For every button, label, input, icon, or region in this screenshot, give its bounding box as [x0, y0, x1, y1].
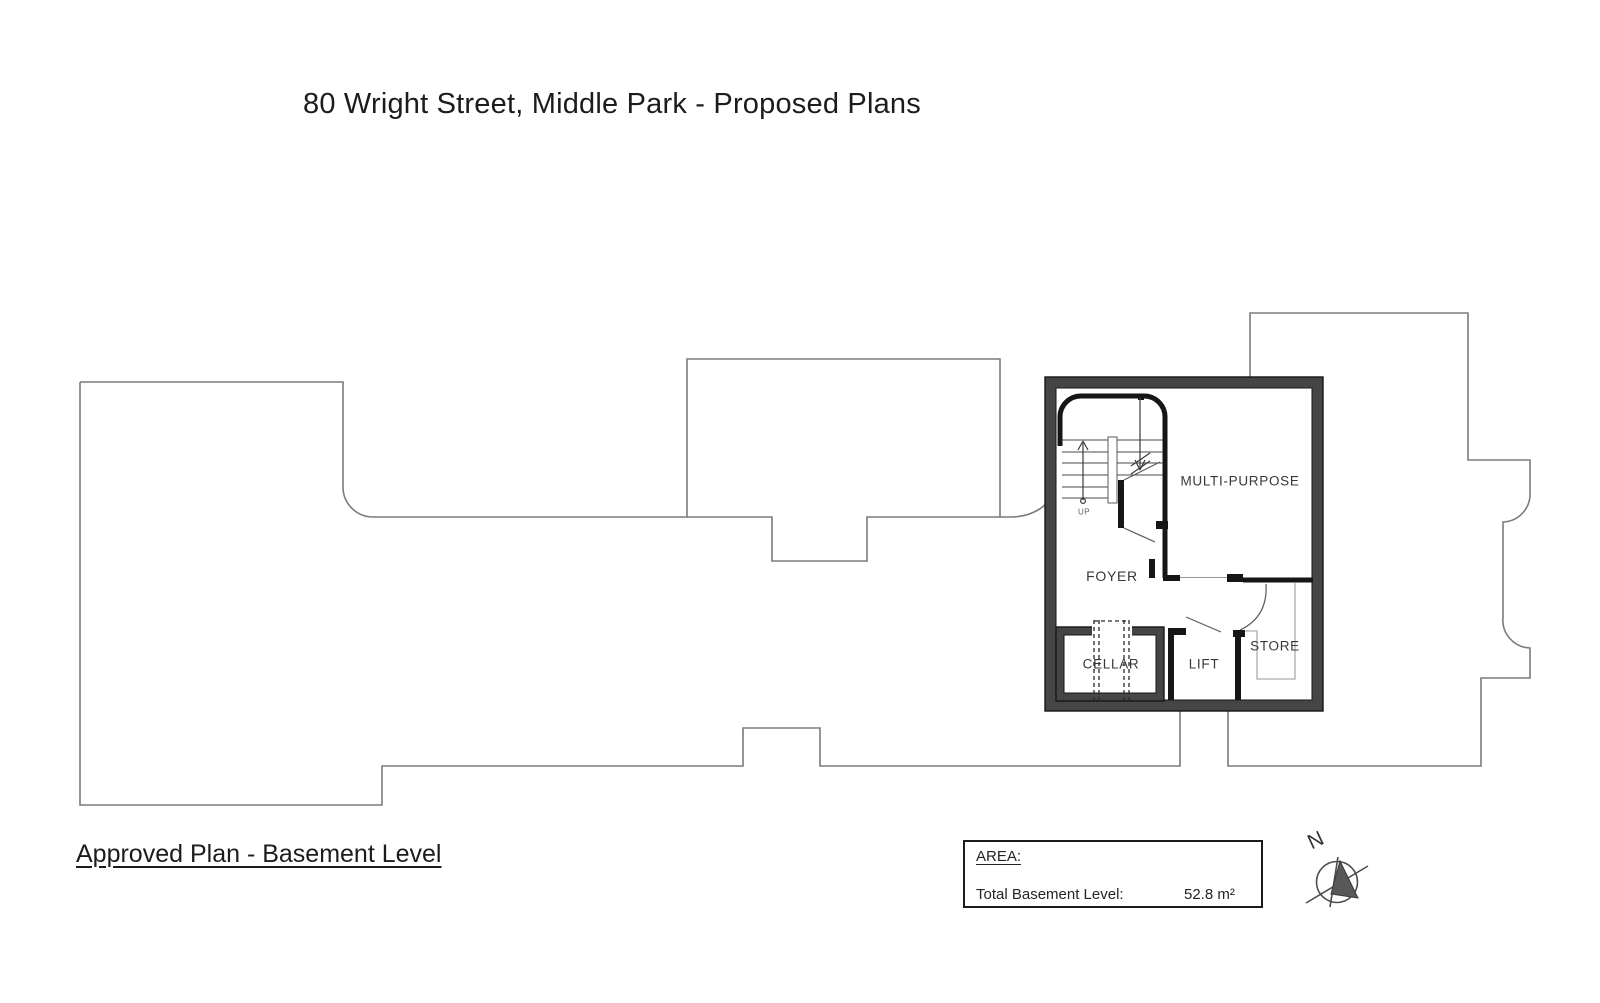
room-label-multi-purpose: MULTI-PURPOSE: [1180, 474, 1299, 489]
area-total-value: 52.8 m²: [1184, 886, 1235, 903]
foyer-column: [1149, 559, 1155, 578]
room-label-lift: LIFT: [1189, 657, 1220, 672]
area-summary-box: AREA: Total Basement Level: 52.8 m²: [963, 840, 1263, 908]
compass-needle: [1331, 861, 1358, 898]
stair-stringer: [1108, 437, 1117, 503]
floor-plan-page: 80 Wright Street, Middle Park - Proposed…: [0, 0, 1600, 1003]
cellar-hatch-gap: [1092, 626, 1132, 636]
outline-lower-left: [80, 382, 1180, 805]
area-total-label: Total Basement Level:: [976, 886, 1124, 903]
room-label-store: STORE: [1250, 639, 1300, 654]
door-jamb: [1156, 521, 1168, 529]
area-heading: AREA:: [976, 848, 1021, 865]
wall-nib: [1227, 574, 1243, 582]
north-compass: [1306, 857, 1368, 907]
plan-caption: Approved Plan - Basement Level: [76, 840, 442, 869]
outline-upper: [80, 382, 1046, 561]
room-label-cellar: CELLAR: [1083, 657, 1140, 672]
room-label-foyer: FOYER: [1086, 568, 1138, 584]
stair-up-label: UP: [1078, 508, 1090, 517]
outline-mid-projection: [687, 359, 1000, 517]
door-jamb: [1118, 480, 1124, 528]
stair-newel: [1138, 394, 1144, 400]
page-title: 80 Wright Street, Middle Park - Proposed…: [303, 88, 921, 121]
